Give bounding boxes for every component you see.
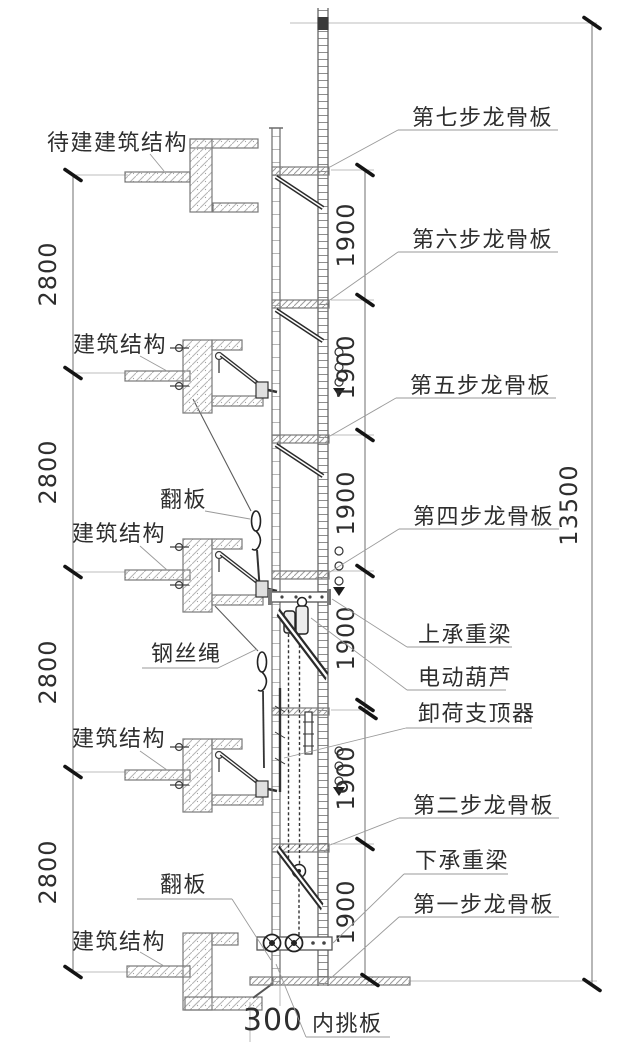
label-step1-keel: 第一步龙骨板 [413, 893, 554, 918]
label-unloading-jack: 卸荷支顶器 [418, 702, 536, 727]
label-structure-2: 建筑结构 [72, 522, 166, 547]
bottom-platform-inner-cantilever [250, 977, 410, 985]
diagonal-brace-7 [276, 177, 323, 208]
label-structure-4: 建筑结构 [72, 930, 166, 955]
dim-story-1: 2800 [34, 241, 62, 306]
label-structure-3: 建筑结构 [72, 727, 166, 752]
diagonal-brace-5 [276, 445, 323, 476]
dim-story-3: 2800 [34, 639, 62, 704]
label-step7-keel: 第七步龙骨板 [412, 106, 553, 131]
dim-step-6: 1900 [332, 879, 360, 944]
dim-story-2: 2800 [34, 439, 62, 504]
left-extension-lines [73, 175, 130, 972]
label-step6-keel: 第六步龙骨板 [412, 228, 553, 253]
lower-load-beam [257, 935, 332, 952]
dimension-bottom-offset: 300 [243, 984, 303, 1042]
dim-total: 13500 [555, 464, 583, 545]
dim-step-5: 1900 [332, 745, 360, 810]
label-step5-keel: 第五步龙骨板 [410, 374, 551, 399]
label-flip-plate-upper: 翻板 [160, 488, 207, 513]
label-wire-rope: 钢丝绳 [151, 642, 222, 667]
label-structure-1: 建筑结构 [73, 333, 167, 358]
hoist-chains [289, 634, 306, 937]
dimension-chain-right: 1900 1900 1900 1900 1900 1900 [332, 165, 378, 986]
diagonal-brace-6 [276, 310, 323, 341]
dim-story-4: 2800 [34, 839, 62, 904]
dim-step-3: 1900 [332, 470, 360, 535]
label-lower-load-beam: 下承重梁 [415, 849, 509, 874]
label-flip-plate-lower: 翻板 [160, 873, 207, 898]
guide-rail-mast [318, 8, 329, 986]
label-upper-load-beam: 上承重梁 [418, 623, 512, 648]
scaffold-elevation-drawing: 2800 2800 2800 2800 1900 1900 1900 1900 … [0, 0, 640, 1048]
label-future-structure: 待建建筑结构 [47, 131, 188, 156]
dimension-chain-left: 2800 2800 2800 2800 [34, 170, 81, 978]
label-step4-keel: 第四步龙骨板 [413, 505, 554, 530]
dim-step-1: 1900 [332, 202, 360, 267]
dim-step-2: 1900 [332, 334, 360, 399]
unloading-jacks [275, 688, 314, 792]
construction-drawing-page: 2800 2800 2800 2800 1900 1900 1900 1900 … [0, 0, 640, 1048]
dim-step-4: 1900 [332, 605, 360, 670]
label-inner-cantilever-plate: 内挑板 [312, 1012, 383, 1037]
label-electric-hoist: 电动葫芦 [418, 666, 512, 691]
dimension-total-height: 13500 [555, 18, 600, 991]
label-step2-keel: 第二步龙骨板 [413, 794, 554, 819]
